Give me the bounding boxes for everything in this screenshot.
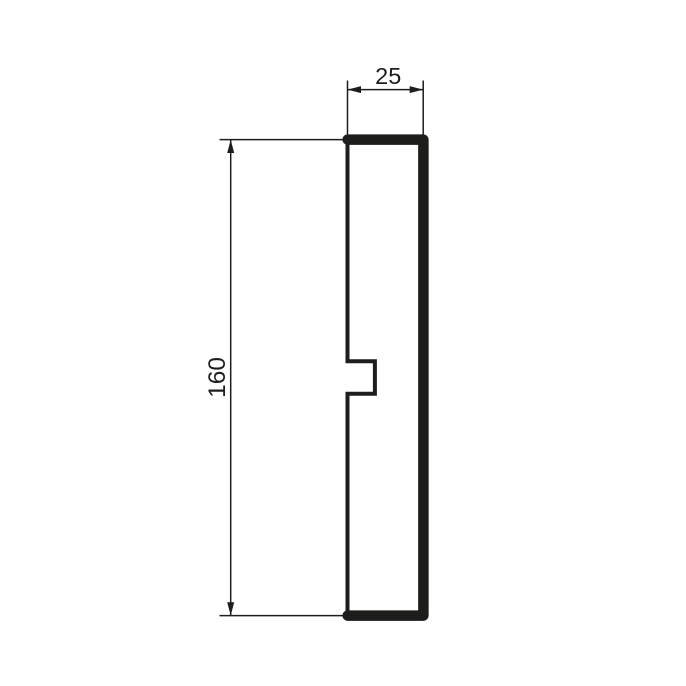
svg-text:25: 25 — [375, 63, 401, 89]
svg-text:160: 160 — [204, 357, 231, 398]
